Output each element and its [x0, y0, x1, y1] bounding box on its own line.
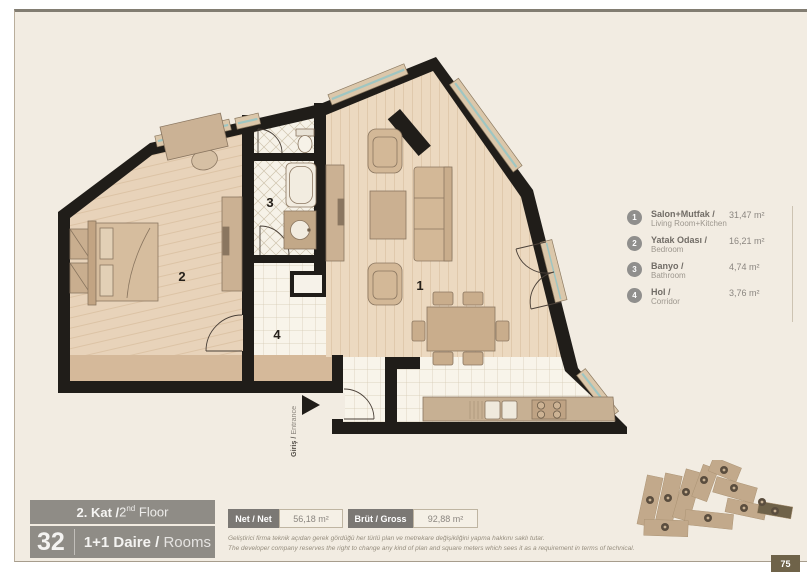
legend-divider [792, 206, 793, 322]
legend-area: 4,74 m² [729, 261, 797, 281]
room-label-bedroom: 2 [178, 269, 185, 284]
dining-chair [463, 352, 483, 365]
floor-plan: 1 2 3 4 Giriş / Entrance [30, 45, 630, 465]
unit-type: 1+1 Daire / Rooms [75, 534, 211, 551]
sink-basin [485, 401, 500, 419]
bed-headboard [88, 221, 96, 305]
legend-area: 16,21 m² [729, 235, 797, 255]
disclaimer-tr: Geliştirici firma teknik açıdan gerek gö… [228, 534, 668, 544]
site-plan [630, 460, 800, 555]
bathtub [286, 163, 316, 207]
sofa-back [444, 167, 452, 261]
legend-subtitle: Living Room+Kitchen [651, 219, 729, 229]
toilet-tank [296, 129, 314, 136]
legend-title: Hol / [651, 287, 729, 297]
floor-label-en: 2nd Floor [119, 504, 168, 519]
legend-number-badge: 4 [627, 288, 642, 303]
net-label: Net / Net [228, 509, 279, 528]
faucet [308, 229, 311, 232]
legend-subtitle: Bedroom [651, 245, 729, 255]
coffee-table [370, 191, 406, 239]
floor-band [70, 355, 332, 381]
legend-subtitle: Bathroom [651, 271, 729, 281]
dining-chair [433, 292, 453, 305]
unit-number: 32 [30, 526, 74, 558]
legend-item-corridor: 4 Hol / Corridor 3,76 m² [627, 287, 797, 307]
washbasin [291, 221, 310, 240]
pillow [100, 265, 113, 296]
entrance-arrow-icon [302, 395, 320, 415]
pillow [100, 228, 113, 259]
kitchen-counter [423, 397, 615, 421]
dining-table [427, 307, 495, 351]
legend-title: Banyo / [651, 261, 729, 271]
legend-number-badge: 3 [627, 262, 642, 277]
legend-item-bathroom: 3 Banyo / Bathroom 4,74 m² [627, 261, 797, 281]
floor-header: 2. Kat / 2nd Floor [30, 500, 215, 524]
gross-value: 92,88 m² [413, 509, 478, 528]
legend-subtitle: Corridor [651, 297, 729, 307]
floor-label-tr: 2. Kat / [77, 505, 120, 520]
entrance-opening [330, 393, 345, 419]
gross-label: Brüt / Gross [348, 509, 413, 528]
dining-chair [496, 321, 509, 341]
legend-area: 3,76 m² [729, 287, 797, 307]
disclaimer-en: The developer company reserves the right… [228, 544, 668, 554]
disclaimer: Geliştirici firma teknik açıdan gerek gö… [228, 534, 668, 554]
unit-header: 32 1+1 Daire / Rooms [30, 526, 215, 558]
entrance-label-en: Entrance [289, 406, 298, 435]
dining-chair [412, 321, 425, 341]
sink-basin [502, 401, 517, 419]
dining-chair [463, 292, 483, 305]
page-number: 75 [771, 555, 800, 572]
room-label-hall: 4 [273, 327, 281, 342]
dining-chair [433, 352, 453, 365]
entrance-label: Giriş / Entrance [289, 406, 298, 457]
stove [532, 400, 566, 419]
legend-number-badge: 1 [627, 210, 642, 225]
legend-title: Yatak Odası / [651, 235, 729, 245]
toilet-bowl [298, 136, 312, 153]
tv [223, 227, 229, 255]
legend-item-bedroom: 2 Yatak Odası / Bedroom 16,21 m² [627, 235, 797, 255]
shaft-niche [294, 275, 322, 293]
legend-item-living: 1 Salon+Mutfak / Living Room+Kitchen 31,… [627, 209, 797, 229]
room-label-bathroom: 3 [266, 195, 273, 210]
entrance-label-tr: Giriş / [289, 435, 298, 457]
legend-title: Salon+Mutfak / [651, 209, 729, 219]
tv [338, 199, 344, 225]
legend-area: 31,47 m² [729, 209, 797, 229]
room-label-living: 1 [416, 278, 423, 293]
legend-number-badge: 2 [627, 236, 642, 251]
room-legend: 1 Salon+Mutfak / Living Room+Kitchen 31,… [627, 209, 797, 313]
net-value: 56,18 m² [279, 509, 343, 528]
brochure-page: 1 2 3 4 Giriş / Entrance 1 Salon+Mutfak … [0, 0, 807, 579]
